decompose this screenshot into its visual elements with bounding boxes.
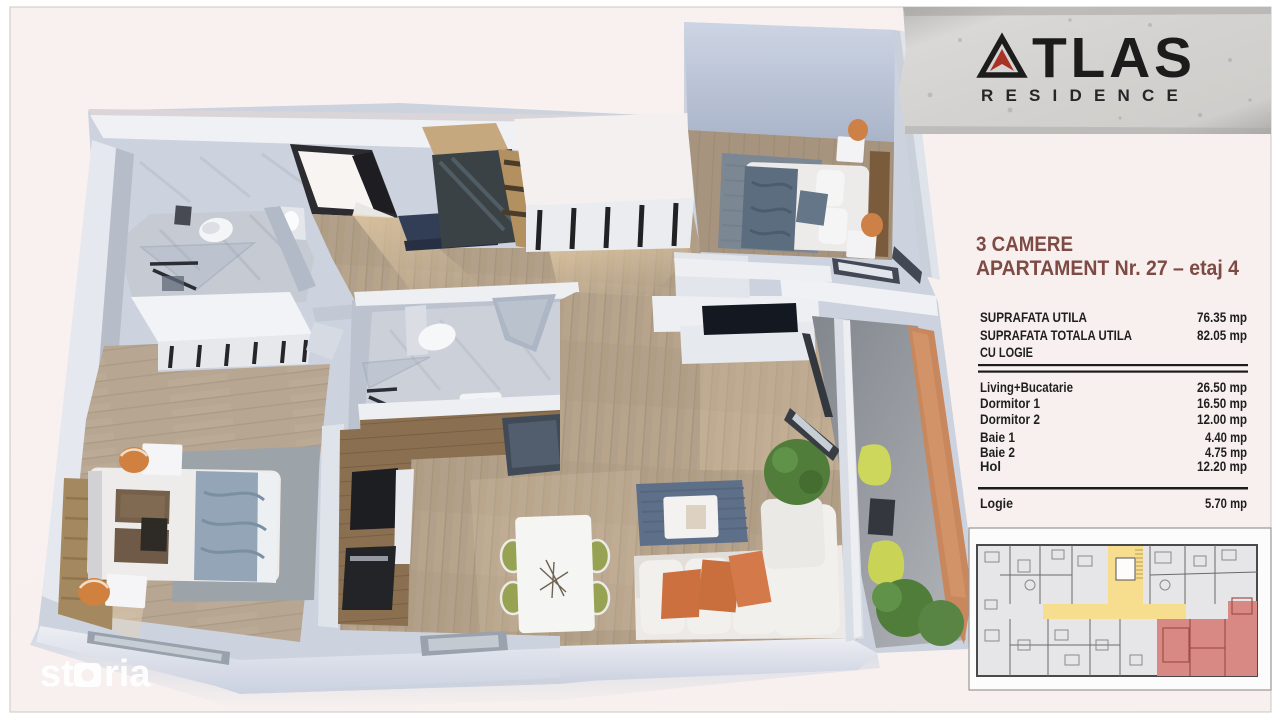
svg-text:TLAS: TLAS	[1032, 26, 1192, 90]
svg-text:ria: ria	[104, 653, 151, 695]
svg-text:Baie 1: Baie 1	[980, 429, 1015, 445]
svg-text:76.35 mp: 76.35 mp	[1197, 309, 1247, 325]
svg-text:Living+Bucatarie: Living+Bucatarie	[980, 379, 1073, 395]
svg-text:SUPRAFATA UTILA: SUPRAFATA UTILA	[980, 309, 1087, 325]
svg-text:16.50 mp: 16.50 mp	[1197, 395, 1247, 411]
svg-text:12.00 mp: 12.00 mp	[1197, 411, 1247, 427]
svg-text:3 CAMERE: 3 CAMERE	[976, 233, 1073, 256]
svg-text:Hol: Hol	[980, 458, 1001, 474]
svg-text:SUPRAFATA TOTALA UTILA: SUPRAFATA TOTALA UTILA	[980, 327, 1132, 343]
svg-text:Logie: Logie	[980, 495, 1013, 511]
svg-text:st: st	[40, 653, 74, 695]
svg-text:12.20 mp: 12.20 mp	[1197, 458, 1247, 474]
svg-text:RESIDENCE: RESIDENCE	[981, 86, 1190, 105]
svg-text:4.40 mp: 4.40 mp	[1205, 429, 1247, 445]
svg-text:82.05 mp: 82.05 mp	[1197, 327, 1247, 343]
svg-text:5.70 mp: 5.70 mp	[1205, 495, 1247, 511]
svg-text:APARTAMENT Nr. 27 – etaj 4: APARTAMENT Nr. 27 – etaj 4	[976, 257, 1239, 280]
svg-text:26.50 mp: 26.50 mp	[1197, 379, 1247, 395]
svg-text:CU LOGIE: CU LOGIE	[980, 344, 1033, 360]
svg-text:Dormitor 2: Dormitor 2	[980, 411, 1040, 427]
svg-text:Dormitor 1: Dormitor 1	[980, 395, 1040, 411]
